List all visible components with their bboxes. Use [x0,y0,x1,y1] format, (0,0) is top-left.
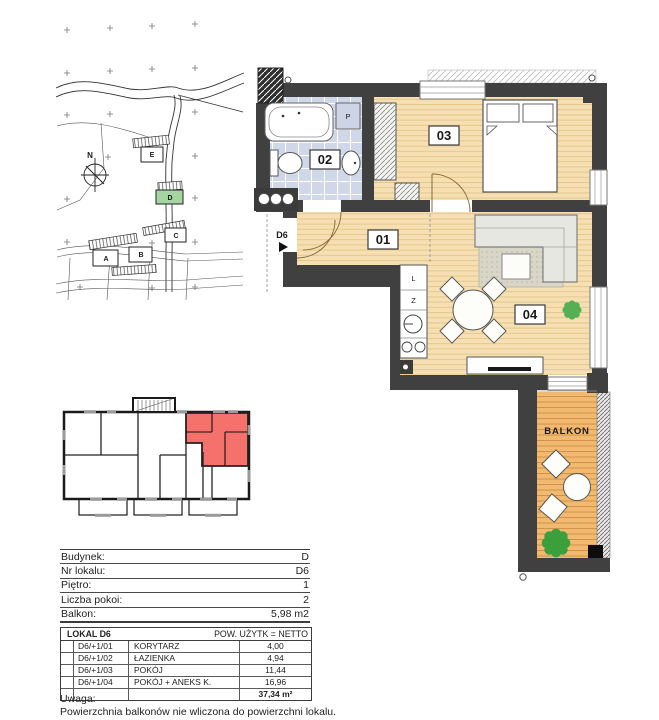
survey-point [520,574,526,580]
wardrobe [374,103,396,180]
room-01-label: 01 [376,232,390,247]
info-label: Balkon: [61,608,96,620]
plant [542,529,571,558]
key-balcony [134,499,182,515]
key-plan [58,392,254,528]
kitchen-counter: L Z [400,265,427,358]
balcony-label: BALKON [544,426,589,437]
room-name: KORYTARZ [129,641,239,652]
survey-point [285,77,291,83]
svg-text:C: C [173,233,178,240]
key-balcony [79,499,127,515]
compass-icon [81,158,109,192]
balcony-railing [597,392,610,558]
room-area: 4,00 [239,641,311,652]
area-table-units-label: POW. UŻYTK = NETTO [214,629,308,639]
room-code: D6/+1/01 [74,641,129,652]
dishwasher-label: Z [411,296,416,305]
room-code: D6/+1/02 [74,653,129,664]
area-row: D6/+1/01 KORYTARZ 4,00 [61,641,311,653]
info-row-building: Budynek:D [60,550,310,564]
area-table-header: LOKAL D6 POW. UŻYTK = NETTO [61,628,311,641]
balcony-door-window [548,377,587,390]
room-area: 11,44 [239,665,311,676]
pillow [487,104,519,122]
hob-burner [402,342,412,352]
svg-text:E: E [150,152,155,159]
info-row-balcony: Balkon:5,98 m2 [60,608,310,621]
washing-machine: P [336,103,360,129]
info-value: 2 [303,594,309,606]
room-04-label: 04 [523,307,538,322]
info-value: 5,98 m2 [271,608,309,620]
floor-plan-drawing: L Z [250,55,659,600]
room-03-label: 03 [437,128,451,143]
area-row: D6/+1/04 POKÓJ + ANEKS K. 16,96 [61,677,311,689]
info-value: D [301,551,309,563]
svg-text:D: D [167,195,172,202]
fridge-label: L [411,274,415,283]
footnote: Uwaga: Powierzchnia balkonów nie wliczon… [60,693,336,719]
room-name: POKÓJ + ANEKS K. [129,677,239,688]
info-label: Budynek: [61,551,105,563]
info-row-unit: Nr lokalu:D6 [60,564,310,578]
survey-point [589,75,595,81]
svg-text:A: A [103,256,108,263]
north-label: N [87,151,93,160]
tv-cabinet [467,357,543,374]
info-value: 1 [303,579,309,591]
info-row-rooms: Liczba pokoi:2 [60,593,310,607]
area-table-title: LOKAL D6 [67,629,111,639]
footnote-title: Uwaga: [60,693,336,706]
svg-text:B: B [138,252,143,259]
bed [483,100,557,192]
pillow [523,104,553,122]
hob-burner [415,342,425,352]
footnote-text: Powierzchnia balkonów nie wliczona do po… [60,706,336,719]
area-row: D6/+1/03 POKÓJ 11,44 [61,665,311,677]
shaft-hatched [258,68,283,103]
radiator [254,188,298,211]
site-plan: E D C B A N [55,5,245,300]
dining-table [453,290,493,330]
key-balcony [189,499,237,515]
bathtub [265,103,333,141]
balcony-table [564,474,591,501]
room-02-label: 02 [318,152,332,167]
room-name: POKÓJ [129,665,239,676]
coffee-table [502,254,530,279]
window [420,81,485,99]
room-area-table: LOKAL D6 POW. UŻYTK = NETTO D6/+1/01 KOR… [60,627,312,701]
bathroom-sink [342,151,360,175]
info-value: D6 [296,565,309,577]
unit-info-table: Budynek:D Nr lokalu:D6 Piętro:1 Liczba p… [60,549,310,623]
window [590,170,607,205]
room-code: D6/+1/04 [74,677,129,688]
info-row-floor: Piętro:1 [60,579,310,593]
svg-text:D6: D6 [276,230,288,240]
plant [562,300,581,319]
floorplan-page: { "colors": { "unit_highlight": "#f5716c… [0,0,659,720]
room-area: 4,94 [239,653,311,664]
info-label: Piętro: [61,579,91,591]
svg-text:P: P [345,112,350,121]
balcony-door-window [590,287,607,368]
area-row: D6/+1/02 ŁAZIENKA 4,94 [61,653,311,665]
room-name: ŁAZIENKA [129,653,239,664]
room-code: D6/+1/03 [74,665,129,676]
room-area: 16,96 [239,677,311,688]
tv [488,367,531,371]
info-label: Liczba pokoi: [61,594,122,606]
info-label: Nr lokalu: [61,565,105,577]
